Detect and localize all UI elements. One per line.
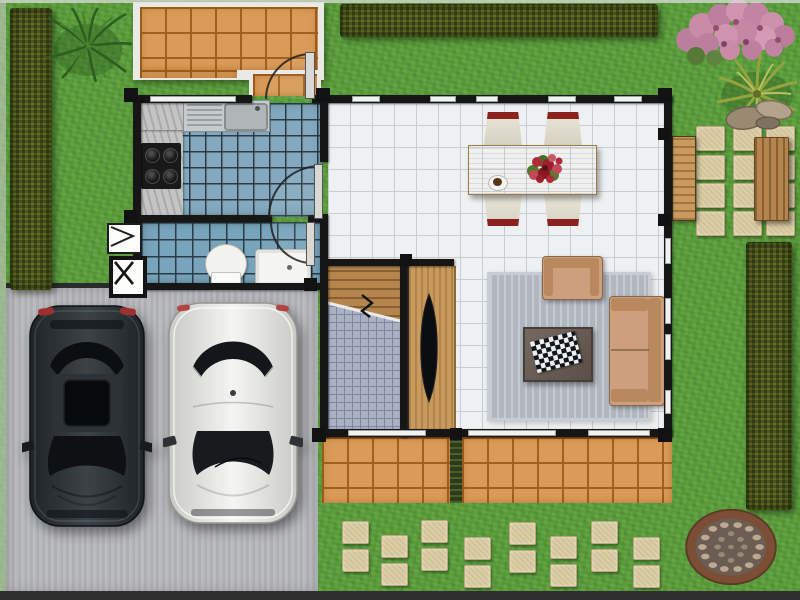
stepping-stone: [591, 521, 618, 544]
hedge-top: [340, 4, 658, 37]
entrance-door: [305, 52, 315, 99]
stepping-stone: [421, 520, 448, 543]
stepping-stone: [696, 155, 725, 180]
chair-backrest: [484, 219, 522, 226]
sink-faucet: [255, 106, 260, 111]
vent-glyph: [109, 225, 136, 248]
frame-edge-bottom: [0, 591, 800, 600]
sofa-cushion-seam: [611, 349, 649, 351]
wall-pillar: [304, 278, 317, 291]
stepping-stone: [550, 536, 577, 559]
window: [614, 96, 642, 102]
terrace-divider: [450, 437, 462, 503]
wall-pillar: [316, 88, 330, 102]
dining-chair: [484, 112, 522, 145]
white-car: [163, 297, 303, 530]
wall-pillar: [124, 88, 138, 102]
coffee-cup-drink: [493, 178, 502, 186]
stepping-stone: [509, 522, 536, 545]
dining-chair: [484, 193, 522, 226]
burner: [163, 169, 178, 184]
stepping-stone: [381, 563, 408, 586]
front-patio-tiles-step: [140, 70, 237, 78]
stepping-stone: [342, 549, 369, 572]
sofa-arm-top: [611, 298, 648, 311]
rear-terrace-east: [462, 437, 672, 503]
wall-stairs-top: [326, 259, 454, 266]
hedge-right: [746, 242, 792, 510]
sink-drainboard: [187, 104, 222, 126]
stepping-stone: [633, 565, 660, 588]
stepping-stone: [509, 550, 536, 573]
sofa-backrest: [648, 298, 661, 402]
window: [665, 298, 671, 324]
window: [665, 238, 671, 264]
wall-pillar: [400, 254, 412, 266]
window: [468, 430, 556, 436]
wall-pillar: [658, 128, 670, 140]
floor-plan-scene: [0, 0, 800, 600]
window: [348, 430, 426, 436]
wall-pillar: [312, 428, 326, 442]
pebble-circle: [683, 506, 779, 588]
window: [548, 96, 576, 102]
dark-car: [22, 300, 152, 532]
chair-backrest: [544, 112, 582, 119]
stepping-stone: [696, 211, 725, 236]
ac-x-glyph: [113, 260, 135, 286]
flower-centerpiece: [521, 149, 567, 187]
stepping-stone: [421, 548, 448, 571]
burner: [163, 148, 178, 163]
wall-pillar: [658, 88, 672, 102]
vanity-drain: [287, 265, 292, 270]
bathroom-door: [306, 222, 315, 266]
rock-cluster: [722, 96, 798, 132]
stepping-stone: [696, 183, 725, 208]
window: [665, 390, 671, 414]
wall-pillar: [658, 428, 672, 442]
vent-box: [107, 223, 142, 254]
dining-chair: [544, 193, 582, 226]
wall-pillar: [450, 428, 462, 440]
stepping-stone: [342, 521, 369, 544]
chair-backrest: [484, 112, 522, 119]
stepping-stone: [696, 126, 725, 151]
stepping-stone: [550, 564, 577, 587]
frame-edge-top: [0, 0, 800, 3]
sofa-arm-bottom: [611, 389, 648, 402]
kitchen-door: [314, 164, 323, 219]
sink-basin: [224, 103, 268, 131]
wall-stairs-side: [400, 259, 407, 437]
wall-bath-south: [133, 283, 320, 290]
armchair-arm-right: [590, 258, 599, 296]
dining-chair: [544, 112, 582, 145]
frame-edge-left: [0, 0, 6, 600]
wall-pillar: [658, 214, 670, 226]
stepping-stone: [633, 537, 660, 560]
wall-kitchen-living-upper: [320, 95, 328, 162]
window: [665, 334, 671, 360]
stepping-stone: [591, 549, 618, 572]
stair-direction-mark: [358, 293, 378, 319]
rear-terrace-west: [322, 437, 450, 503]
window: [588, 430, 650, 436]
ornamental-grass: [42, 4, 134, 86]
wall-west-living: [320, 214, 328, 437]
tv: [410, 290, 448, 406]
window: [476, 96, 498, 102]
chair-backrest: [544, 219, 582, 226]
side-door: [672, 136, 696, 221]
wall-east: [664, 95, 672, 437]
armchair-arm-left: [544, 258, 553, 296]
burner: [145, 169, 160, 184]
wall-kitchen-bath: [133, 215, 272, 222]
stepping-stone: [381, 535, 408, 558]
window: [352, 96, 380, 102]
burner: [145, 148, 160, 163]
window: [150, 96, 236, 102]
window: [430, 96, 456, 102]
stepping-stone: [464, 565, 491, 588]
garden-bench: [754, 137, 789, 221]
wall-pillar: [124, 210, 137, 223]
ac-unit: [109, 256, 147, 298]
stepping-stone: [464, 537, 491, 560]
